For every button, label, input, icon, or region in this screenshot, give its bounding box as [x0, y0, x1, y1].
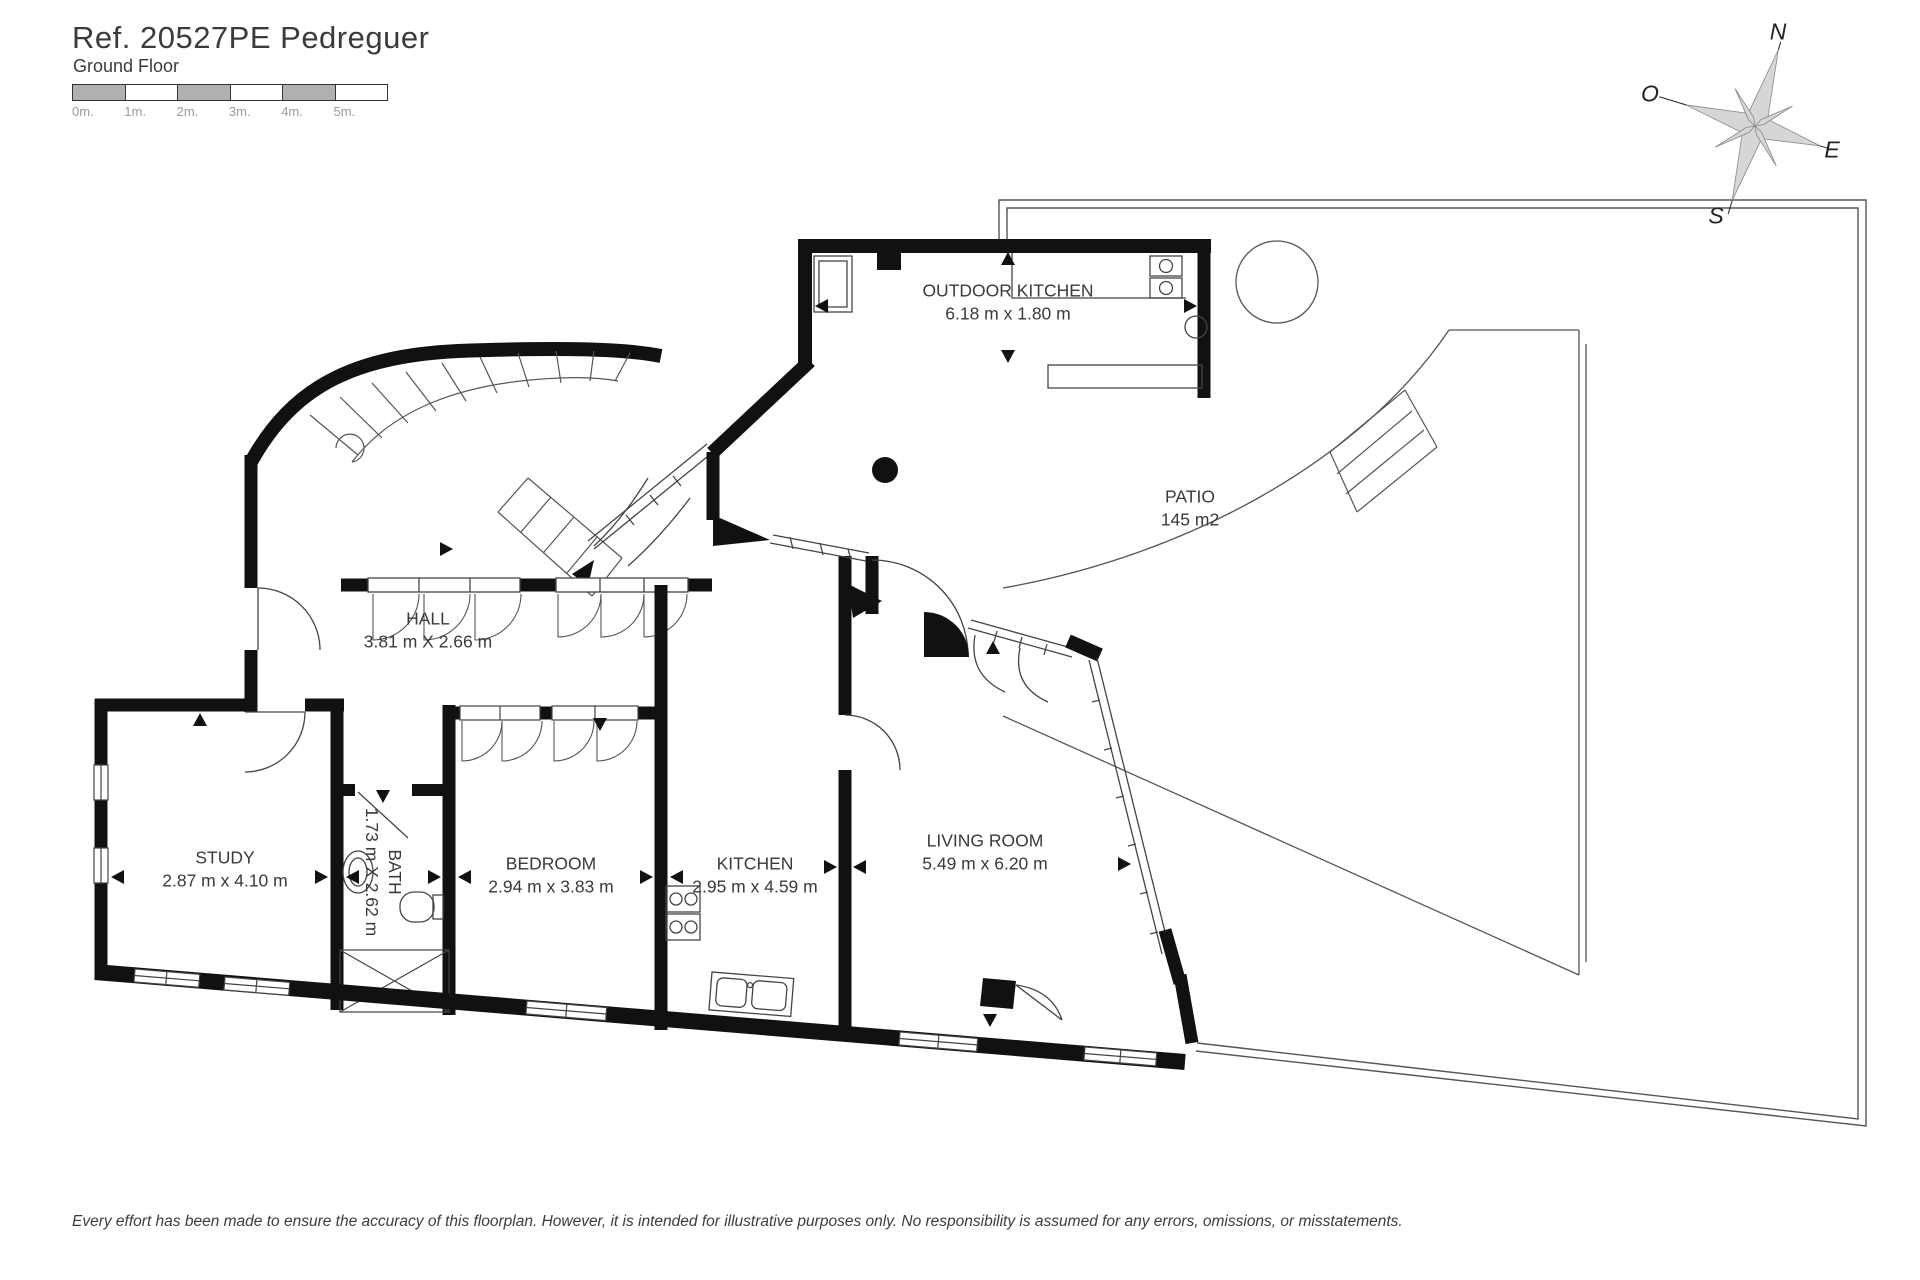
entrance-wedge: [713, 515, 770, 546]
dimension-arrows: [111, 252, 1197, 1027]
scale-label: 0m.: [72, 104, 124, 119]
room-dims: 1.73 m X 2.62 m: [360, 808, 383, 936]
room-dims: 6.18 m x 1.80 m: [922, 302, 1093, 325]
room-label-study: STUDY 2.87 m x 4.10 m: [162, 846, 287, 892]
scale-segment: [126, 85, 179, 100]
compass-south-label: S: [1708, 203, 1723, 230]
compass-north-label: N: [1770, 19, 1787, 46]
page-title: Ref. 20527PE Pedreguer: [72, 20, 429, 56]
room-dims: 3.81 m X 2.66 m: [364, 630, 492, 653]
room-label-kitchen: KITCHEN 2.95 m x 4.59 m: [692, 852, 817, 898]
patio-round-feature: [1236, 241, 1318, 323]
room-label-outdoor-kitchen: OUTDOOR KITCHEN 6.18 m x 1.80 m: [922, 279, 1093, 325]
living-glazed-bands: [770, 535, 1075, 702]
entrance-glazing: [588, 444, 713, 566]
room-label-bedroom: BEDROOM 2.94 m x 3.83 m: [488, 852, 613, 898]
outdoor-kitchen-pillar: [877, 246, 901, 270]
room-label-hall: HALL 3.81 m X 2.66 m: [364, 607, 492, 653]
scale-label: 4m.: [281, 104, 333, 119]
room-name: KITCHEN: [692, 852, 817, 875]
staircase: [310, 351, 630, 596]
study-door: [245, 712, 305, 772]
scale-segment: [336, 85, 388, 100]
room-dims: 2.95 m x 4.59 m: [692, 875, 817, 898]
compass-west-label: O: [1641, 81, 1659, 108]
living-slant-end-wall: [1165, 930, 1180, 983]
room-name: BEDROOM: [488, 852, 613, 875]
room-name: STUDY: [162, 846, 287, 869]
room-name: BATH: [383, 808, 406, 936]
scale-labels: 0m. 1m. 2m. 3m. 4m. 5m.: [72, 104, 412, 119]
room-label-bath: BATH 1.73 m X 2.62 m: [360, 808, 406, 936]
scale-label: 2m.: [177, 104, 229, 119]
scale-label: 3m.: [229, 104, 281, 119]
living-corner-wall: [1068, 641, 1100, 655]
pool-steps: [1330, 390, 1437, 512]
scale-label: 5m.: [333, 104, 385, 119]
page-subtitle: Ground Floor: [73, 56, 179, 77]
outdoor-kitchen-walls: [712, 239, 1211, 453]
scale-segment: [283, 85, 336, 100]
kitchen-sink: [709, 972, 794, 1016]
scale-segment: [178, 85, 231, 100]
compass-rose: [1615, 8, 1915, 248]
hall-walls: [251, 349, 661, 712]
room-name: LIVING ROOM: [922, 829, 1047, 852]
living-entry-dark-fan: [924, 612, 969, 657]
scale-segment: [73, 85, 126, 100]
scale-bar: [72, 84, 388, 101]
living-right-wall: [1180, 975, 1192, 1043]
living-slant-windows: [1089, 658, 1170, 954]
room-name: PATIO: [1161, 485, 1219, 508]
room-label-living-room: LIVING ROOM 5.49 m x 6.20 m: [922, 829, 1047, 875]
bedroom-closet-fans: [462, 721, 637, 761]
room-label-patio: PATIO 145 m2: [1161, 485, 1219, 531]
room-name: HALL: [364, 607, 492, 630]
room-dims: 2.94 m x 3.83 m: [488, 875, 613, 898]
room-dims: 145 m2: [1161, 508, 1219, 531]
living-patio-door: [1016, 985, 1062, 1020]
column-dot: [872, 457, 898, 483]
kitchen-door-arc: [845, 715, 900, 770]
living-patio-door-stub: [980, 978, 1016, 1009]
scale-segment: [231, 85, 284, 100]
hall-door: [258, 588, 320, 650]
compass-east-label: E: [1824, 137, 1839, 164]
room-dims: 2.87 m x 4.10 m: [162, 869, 287, 892]
patio-boundary: [999, 200, 1866, 1126]
room-dims: 5.49 m x 6.20 m: [922, 852, 1047, 875]
room-name: OUTDOOR KITCHEN: [922, 279, 1093, 302]
disclaimer-text: Every effort has been made to ensure the…: [72, 1213, 1403, 1231]
scale-label: 1m.: [124, 104, 176, 119]
